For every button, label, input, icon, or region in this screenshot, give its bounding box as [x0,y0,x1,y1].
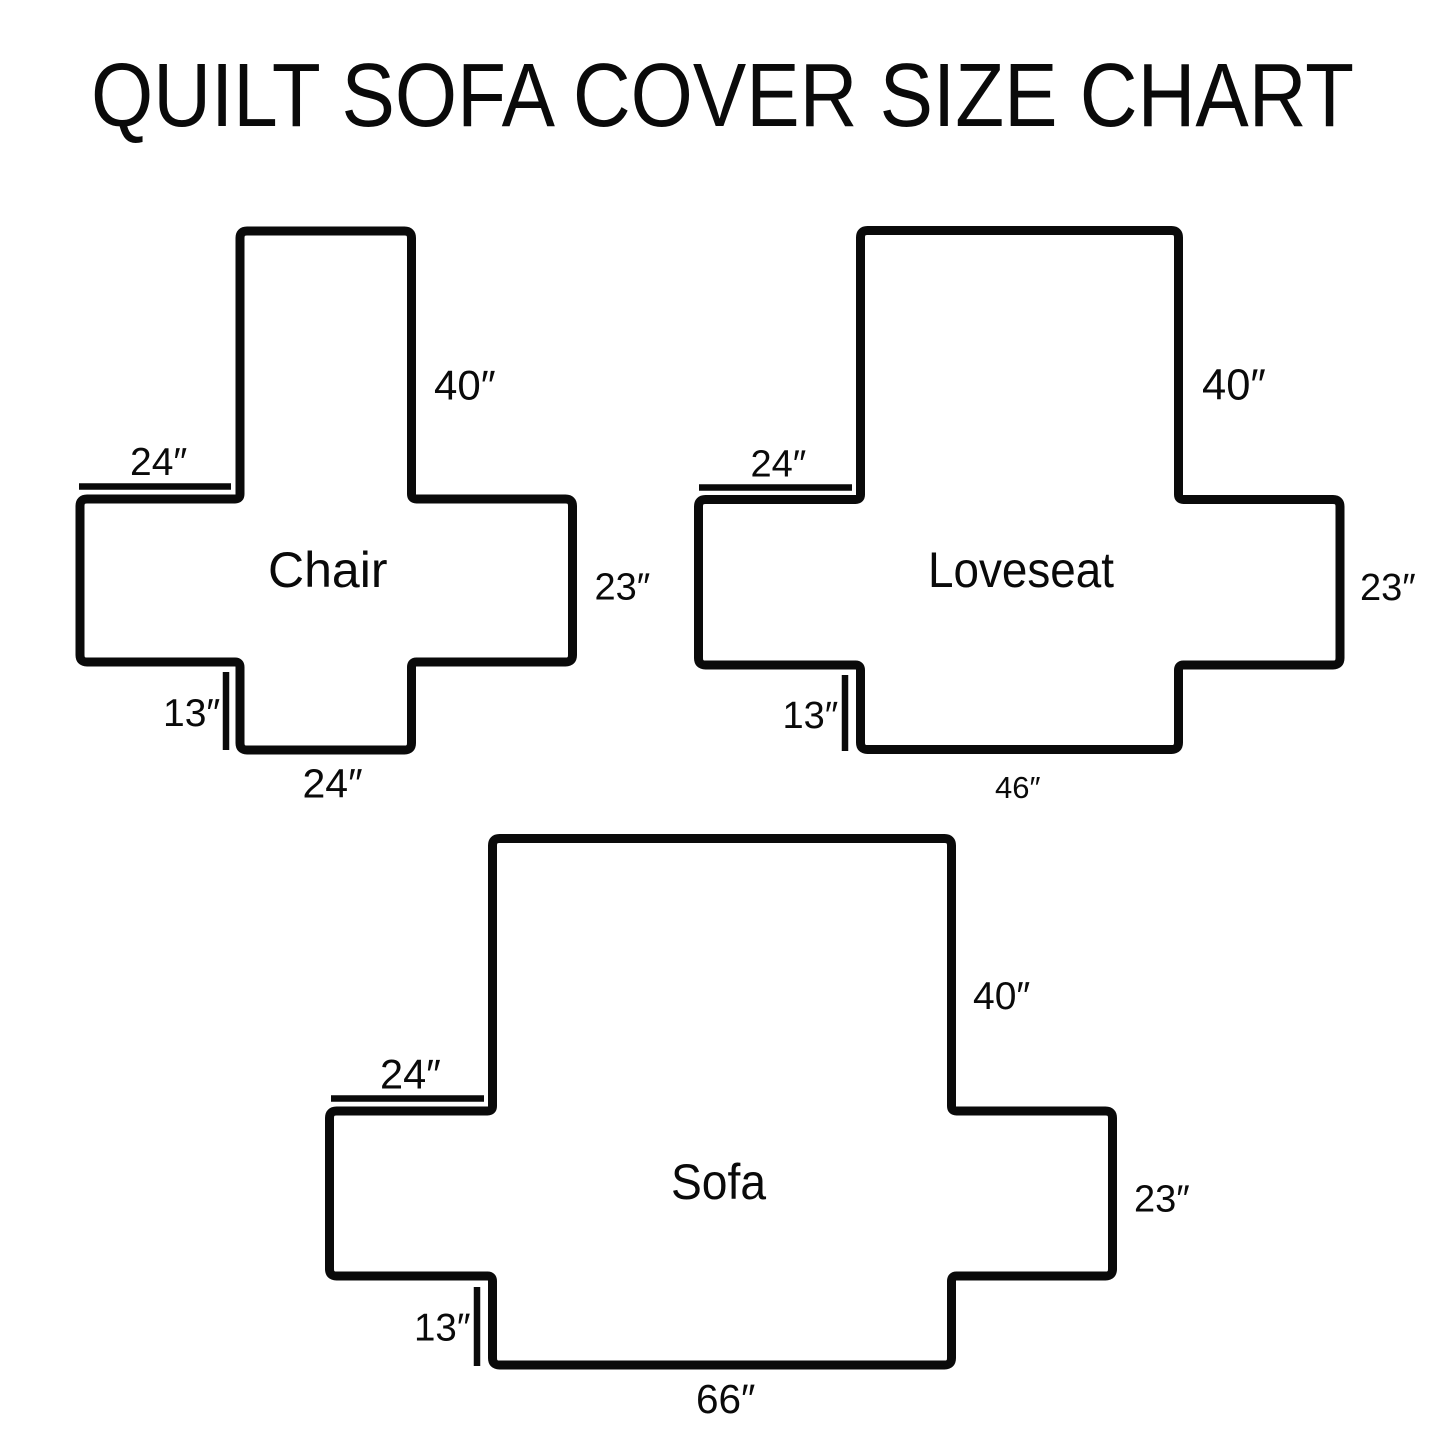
svg-text:24″: 24″ [130,441,187,484]
svg-text:40″: 40″ [973,975,1030,1018]
svg-text:40″: 40″ [434,362,496,409]
svg-text:Sofa: Sofa [671,1154,766,1210]
svg-text:QUILT SOFA COVER SIZE CHART: QUILT SOFA COVER SIZE CHART [91,46,1354,146]
svg-text:Loveseat: Loveseat [928,542,1114,598]
svg-text:23″: 23″ [1134,1179,1190,1221]
svg-text:Chair: Chair [268,542,387,598]
svg-text:13″: 13″ [414,1307,470,1350]
svg-text:24″: 24″ [751,444,807,486]
svg-text:23″: 23″ [595,567,651,609]
svg-text:23″: 23″ [1360,567,1416,609]
svg-text:13″: 13″ [783,695,839,737]
svg-text:13″: 13″ [163,692,220,735]
svg-text:24″: 24″ [380,1051,441,1098]
svg-text:66″: 66″ [696,1376,755,1422]
svg-text:40″: 40″ [1202,362,1266,410]
svg-text:46″: 46″ [995,770,1040,805]
svg-text:24″: 24″ [303,761,363,807]
